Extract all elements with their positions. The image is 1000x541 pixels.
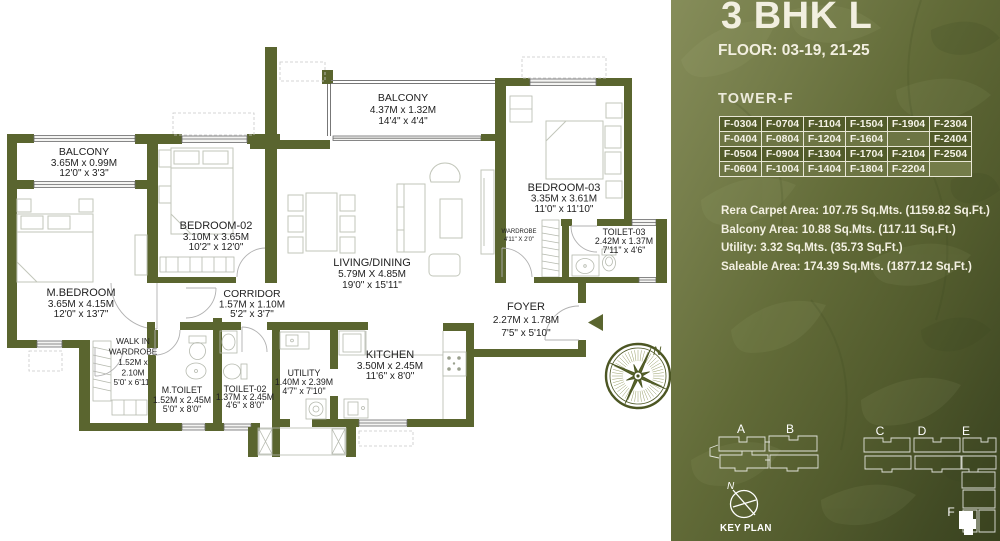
svg-text:5'2" x 3'7": 5'2" x 3'7" — [230, 309, 274, 320]
svg-text:12'0" x 13'7": 12'0" x 13'7" — [54, 309, 109, 320]
svg-text:BEDROOM-02: BEDROOM-02 — [180, 220, 253, 232]
svg-text:BALCONY: BALCONY — [378, 92, 428, 104]
svg-text:CORRIDOR: CORRIDOR — [223, 288, 281, 300]
svg-text:12'0" x 3'3": 12'0" x 3'3" — [59, 168, 109, 179]
svg-text:BEDROOM-03: BEDROOM-03 — [528, 182, 601, 194]
svg-text:F: F — [947, 505, 954, 519]
svg-text:N: N — [653, 346, 662, 358]
svg-text:4'7" x 7'10": 4'7" x 7'10" — [282, 386, 325, 396]
svg-text:LIVING/DINING: LIVING/DINING — [333, 257, 411, 269]
svg-text:N: N — [727, 481, 735, 492]
svg-text:4.37M x 1.32M: 4.37M x 1.32M — [370, 105, 436, 116]
svg-text:M.TOILET: M.TOILET — [162, 385, 203, 395]
svg-text:1.52M x: 1.52M x — [118, 357, 148, 367]
svg-text:2.10M: 2.10M — [121, 368, 144, 378]
svg-text:5'0' x 6'11": 5'0' x 6'11" — [114, 377, 153, 387]
svg-text:KITCHEN: KITCHEN — [366, 349, 414, 361]
svg-text:M.BEDROOM: M.BEDROOM — [46, 287, 115, 299]
svg-text:E: E — [962, 424, 970, 438]
svg-text:C: C — [876, 424, 885, 438]
svg-text:KEY PLAN: KEY PLAN — [720, 523, 772, 534]
svg-text:11'0" x 11'10": 11'0" x 11'10" — [535, 204, 594, 215]
svg-text:WALK IN: WALK IN — [116, 336, 150, 346]
svg-text:5.79M X 4.85M: 5.79M X 4.85M — [338, 269, 406, 280]
svg-text:10'2" x 12'0": 10'2" x 12'0" — [189, 242, 244, 253]
svg-text:BALCONY: BALCONY — [59, 146, 109, 158]
svg-text:11'6" x 8'0": 11'6" x 8'0" — [366, 371, 415, 382]
svg-text:7'5" x 5'10": 7'5" x 5'10" — [501, 328, 551, 339]
svg-text:FOYER: FOYER — [507, 301, 545, 313]
svg-text:WARDROBE: WARDROBE — [501, 229, 536, 235]
svg-text:2.27M x 1.78M: 2.27M x 1.78M — [493, 315, 559, 326]
svg-text:19'0" x 15'11": 19'0" x 15'11" — [342, 280, 402, 291]
svg-text:3.35M x 3.61M: 3.35M x 3.61M — [531, 194, 597, 205]
svg-text:4'11" X 2'0": 4'11" X 2'0" — [504, 237, 534, 243]
svg-text:5'0" x 8'0": 5'0" x 8'0" — [163, 404, 201, 414]
svg-text:B: B — [786, 422, 794, 436]
svg-text:7'11" x 4'6": 7'11" x 4'6" — [603, 245, 646, 255]
svg-text:A: A — [737, 422, 745, 436]
svg-text:14'4" x 4'4": 14'4" x 4'4" — [378, 116, 428, 127]
svg-text:4'6" x 8'0": 4'6" x 8'0" — [226, 400, 264, 410]
svg-text:D: D — [918, 424, 927, 438]
